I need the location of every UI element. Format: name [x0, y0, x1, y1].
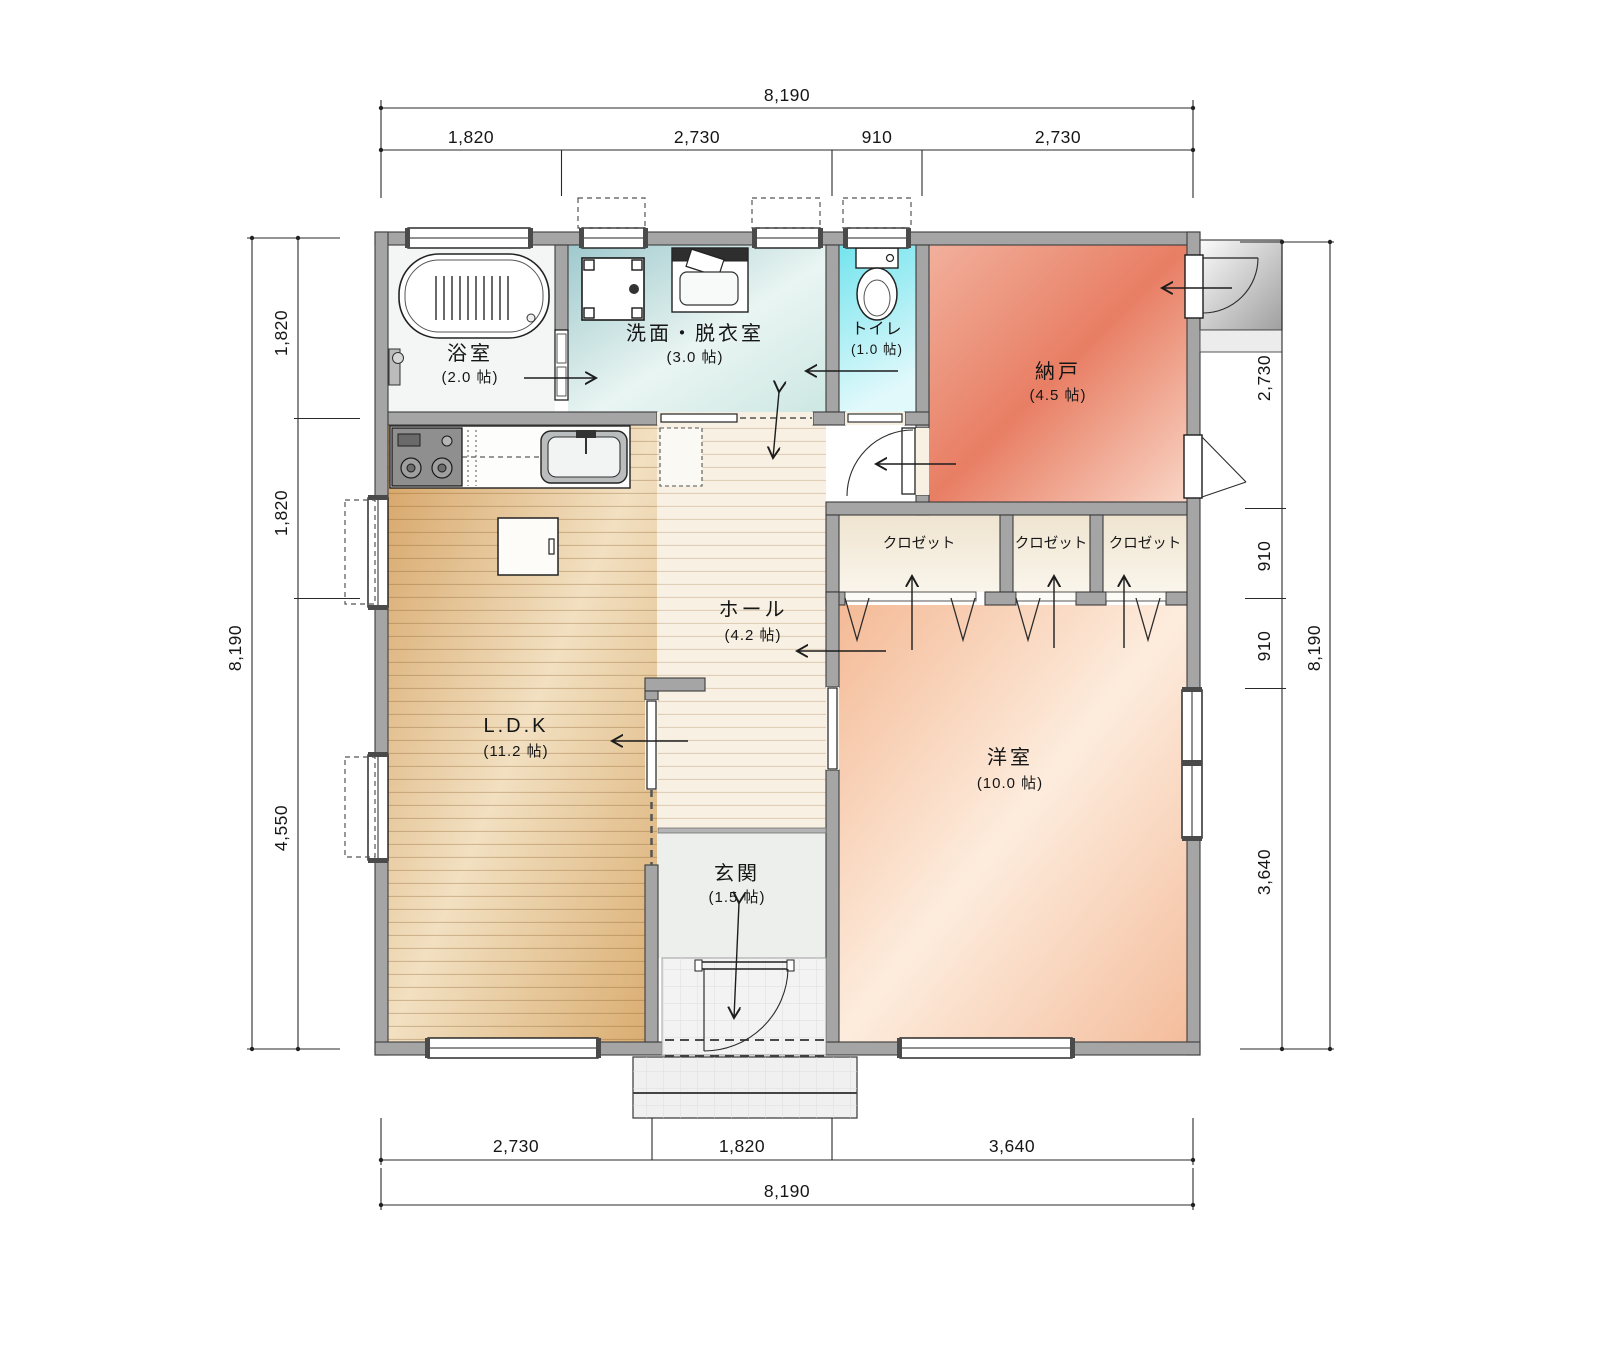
dim-right-seg2: 910 [1254, 541, 1274, 572]
western-bottom-window-icon [897, 1038, 1075, 1058]
dim-bottom-seg1: 2,730 [493, 1136, 539, 1156]
room-label-entrance: 玄関 [714, 862, 760, 885]
room-label-bath: 浴室 [447, 342, 493, 365]
washroom-window2-icon [752, 228, 823, 248]
room-size-western: (10.0 帖) [977, 775, 1043, 792]
dim-bottom-seg2: 1,820 [719, 1136, 765, 1156]
floor-plan-page: 8,190 1,820 2,730 910 2,730 2,730 1,820 … [0, 0, 1610, 1359]
wall-closet-bottom-4 [1166, 592, 1187, 605]
refrigerator-space [660, 428, 702, 486]
western-sliding-door-icon [828, 688, 837, 769]
washing-machine-icon [582, 258, 644, 320]
dimension-left: 1,820 1,820 4,550 8,190 [225, 236, 360, 1051]
dim-bottom-total: 8,190 [764, 1181, 810, 1201]
ldk-sliding-door-icon [647, 701, 656, 789]
wall-ldk-hall-top [645, 691, 658, 700]
ldk-bottom-window-icon [425, 1038, 601, 1058]
storage-porch [1200, 240, 1282, 330]
wall-toilet-storage [916, 245, 929, 428]
storage-window-icon [1184, 435, 1246, 498]
room-label-closet1: クロゼット [883, 535, 956, 552]
wall-left [375, 232, 388, 1055]
wall-bath-right [555, 245, 568, 330]
washroom-sliding-door-icon [661, 414, 737, 422]
closet2-track [1016, 592, 1076, 601]
dim-left-seg3: 4,550 [271, 805, 291, 851]
wall-washroom-toilet [826, 245, 839, 412]
wall-closet-bottom-2 [985, 592, 1016, 605]
room-size-ldk: (11.2 帖) [483, 743, 548, 760]
dim-left-total: 8,190 [225, 625, 245, 671]
room-size-bath: (2.0 帖) [441, 369, 498, 386]
room-size-entrance: (1.5 帖) [708, 889, 765, 906]
room-label-toilet: トイレ [851, 321, 902, 338]
entrance-step-threshold [658, 828, 826, 833]
room-size-toilet: (1.0 帖) [851, 342, 903, 357]
room-size-storage: (4.5 帖) [1029, 387, 1086, 404]
kitchen-sink-icon [541, 430, 627, 483]
bathtub-icon [399, 254, 549, 338]
room-label-washroom: 洗面・脱衣室 [626, 322, 764, 345]
dim-left-seg1: 1,820 [271, 310, 291, 356]
closet1-floor [839, 515, 1000, 592]
dim-bottom-seg3: 3,640 [989, 1136, 1035, 1156]
kitchen-counter-icon [390, 426, 630, 488]
island-counter-icon [498, 518, 558, 575]
wall-hall-western-upper [826, 592, 839, 687]
shutter-box-icon [843, 198, 911, 228]
dimension-top: 8,190 1,820 2,730 910 2,730 [379, 85, 1195, 198]
room-label-western: 洋室 [987, 746, 1033, 769]
wall-closet-top [826, 502, 1187, 515]
dim-top-seg1: 1,820 [448, 127, 494, 147]
vanity-icon [672, 248, 748, 312]
dim-top-seg4: 2,730 [1035, 127, 1081, 147]
wall-wet-bottom-1 [388, 412, 657, 425]
dim-left-seg2: 1,820 [271, 490, 291, 536]
washroom-window1-icon [579, 228, 648, 248]
dimension-bottom: 2,730 1,820 3,640 8,190 [379, 1118, 1195, 1210]
toilet-door-icon [848, 414, 902, 422]
room-size-hall: (4.2 帖) [724, 627, 781, 644]
closet3-floor [1103, 515, 1187, 592]
room-label-storage: 納戸 [1035, 360, 1081, 383]
dim-right-total: 8,190 [1304, 625, 1324, 671]
room-size-washroom: (3.0 帖) [666, 349, 723, 366]
dim-top-seg2: 2,730 [674, 127, 720, 147]
wall-right [1187, 232, 1200, 1055]
room-label-closet2: クロゼット [1015, 535, 1088, 552]
ldk-left-window2-icon [368, 752, 388, 863]
dim-right-seg1: 2,730 [1254, 355, 1274, 401]
dimension-right: 2,730 910 910 3,640 8,190 [1240, 240, 1334, 1051]
bath-window-icon [405, 228, 533, 248]
closet2-floor [1013, 515, 1090, 592]
floor-plan-drawing: 8,190 1,820 2,730 910 2,730 2,730 1,820 … [0, 0, 1610, 1359]
wall-closet-div1 [1000, 515, 1013, 592]
dim-top-total: 8,190 [764, 85, 810, 105]
entrance-porch-tiles [633, 1057, 857, 1118]
wall-closet-left [826, 515, 839, 592]
closet1-track [845, 592, 976, 601]
dim-top-seg3: 910 [862, 127, 893, 147]
toilet-icon [856, 248, 898, 320]
storage-door-opening [916, 428, 929, 495]
western-floor [839, 605, 1187, 1042]
shutter-box-icon [578, 198, 645, 228]
ldk-left-window1-icon [368, 495, 388, 610]
room-label-hall: ホール [719, 599, 788, 621]
wall-wet-bottom-3 [905, 412, 929, 425]
bath-folding-door-icon [555, 330, 568, 400]
dim-right-seg4: 3,640 [1254, 849, 1274, 895]
wall-ldk-stub [645, 678, 705, 691]
toilet-window-icon [843, 228, 911, 248]
dim-right-seg3: 910 [1254, 631, 1274, 662]
stove-icon [392, 428, 462, 486]
shutter-box-icon [752, 198, 820, 228]
wall-ldk-entrance [645, 865, 658, 1042]
wall-closet-bottom-3 [1076, 592, 1106, 605]
western-right-window-icon [1182, 687, 1202, 841]
wall-hall-western-lower [826, 770, 839, 1042]
wall-closet-div2 [1090, 515, 1103, 592]
room-label-closet3: クロゼット [1109, 535, 1182, 552]
wall-wet-bottom-2 [813, 412, 845, 425]
room-label-ldk: L.D.K [483, 715, 548, 737]
storage-porch-step [1200, 330, 1282, 352]
storage-door-leaf-icon [902, 428, 915, 494]
